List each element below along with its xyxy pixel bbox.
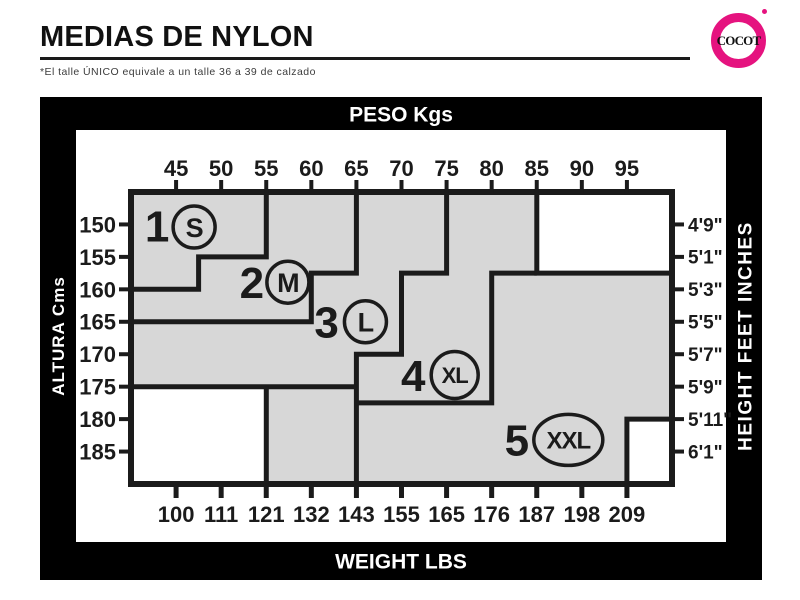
right-tick-label-185: 6'1" xyxy=(688,442,723,463)
excluded-area-bottom-right xyxy=(627,419,672,484)
title-underline xyxy=(40,57,690,60)
size-code-L: L xyxy=(358,307,374,337)
size-code-S: S xyxy=(186,213,203,243)
right-axis-title: HEIGHT FEET INCHES xyxy=(736,221,757,451)
page-title: MEDIAS DE NYLON xyxy=(40,21,314,54)
bottom-tick-label-176: 176 xyxy=(473,502,510,527)
top-tick-label-95: 95 xyxy=(615,156,639,181)
left-tick-label-170: 170 xyxy=(79,342,116,367)
bottom-tick-label-187: 187 xyxy=(518,502,555,527)
right-tick-label-180: 5'11" xyxy=(688,410,732,431)
left-tick-label-155: 155 xyxy=(79,245,116,270)
size-number-2: 2 xyxy=(240,259,264,308)
left-tick-label-165: 165 xyxy=(79,310,116,335)
footnote: *El talle ÚNICO equivale a un talle 36 a… xyxy=(40,66,316,78)
top-tick-label-55: 55 xyxy=(254,156,278,181)
logo-text: COCOT xyxy=(717,34,761,47)
left-tick-label-150: 150 xyxy=(79,212,116,237)
top-tick-label-70: 70 xyxy=(389,156,413,181)
size-number-5: 5 xyxy=(505,417,529,466)
size-number-1: 1 xyxy=(145,203,169,252)
size-chart: PESO Kgs WEIGHT LBS ALTURA Cms HEIGHT FE… xyxy=(0,97,800,580)
left-tick-label-185: 185 xyxy=(79,439,116,464)
right-tick-label-170: 5'7" xyxy=(688,345,723,366)
bottom-tick-label-111: 111 xyxy=(204,502,238,527)
right-tick-label-155: 5'1" xyxy=(688,248,723,269)
bottom-tick-label-143: 143 xyxy=(338,502,375,527)
brand-logo: COCOT xyxy=(711,13,766,68)
top-tick-label-80: 80 xyxy=(479,156,503,181)
size-code-XL: XL xyxy=(442,363,469,388)
top-tick-label-75: 75 xyxy=(434,156,458,181)
top-tick-label-85: 85 xyxy=(525,156,549,181)
bottom-tick-label-165: 165 xyxy=(428,502,465,527)
right-tick-label-160: 5'3" xyxy=(688,280,723,301)
bottom-axis-title: WEIGHT LBS xyxy=(335,551,467,574)
left-tick-label-180: 180 xyxy=(79,407,116,432)
top-tick-label-60: 60 xyxy=(299,156,323,181)
left-tick-label-160: 160 xyxy=(79,277,116,302)
bottom-tick-label-198: 198 xyxy=(563,502,600,527)
left-tick-label-175: 175 xyxy=(79,375,116,400)
left-axis-title: ALTURA Cms xyxy=(49,276,68,396)
bottom-tick-label-100: 100 xyxy=(158,502,195,527)
right-tick-label-150: 4'9" xyxy=(688,215,723,236)
bottom-tick-label-155: 155 xyxy=(383,502,420,527)
right-tick-label-165: 5'5" xyxy=(688,313,723,334)
top-tick-label-90: 90 xyxy=(570,156,594,181)
bottom-tick-label-132: 132 xyxy=(293,502,330,527)
top-tick-label-65: 65 xyxy=(344,156,368,181)
bottom-tick-label-121: 121 xyxy=(248,502,285,527)
excluded-area-top-right xyxy=(537,192,672,273)
excluded-area-bottom-left xyxy=(131,387,266,484)
right-tick-label-175: 5'9" xyxy=(688,378,723,399)
size-number-3: 3 xyxy=(314,299,338,348)
plot-area: 4510050111551216013265143701557516580176… xyxy=(79,156,732,527)
size-code-M: M xyxy=(277,268,299,298)
top-tick-label-50: 50 xyxy=(209,156,233,181)
size-code-XXL: XXL xyxy=(546,428,590,455)
top-axis-title: PESO Kgs xyxy=(349,104,453,127)
top-tick-label-45: 45 xyxy=(164,156,188,181)
size-number-4: 4 xyxy=(401,352,426,401)
bottom-tick-label-209: 209 xyxy=(609,502,646,527)
logo-trademark-dot xyxy=(762,9,767,14)
